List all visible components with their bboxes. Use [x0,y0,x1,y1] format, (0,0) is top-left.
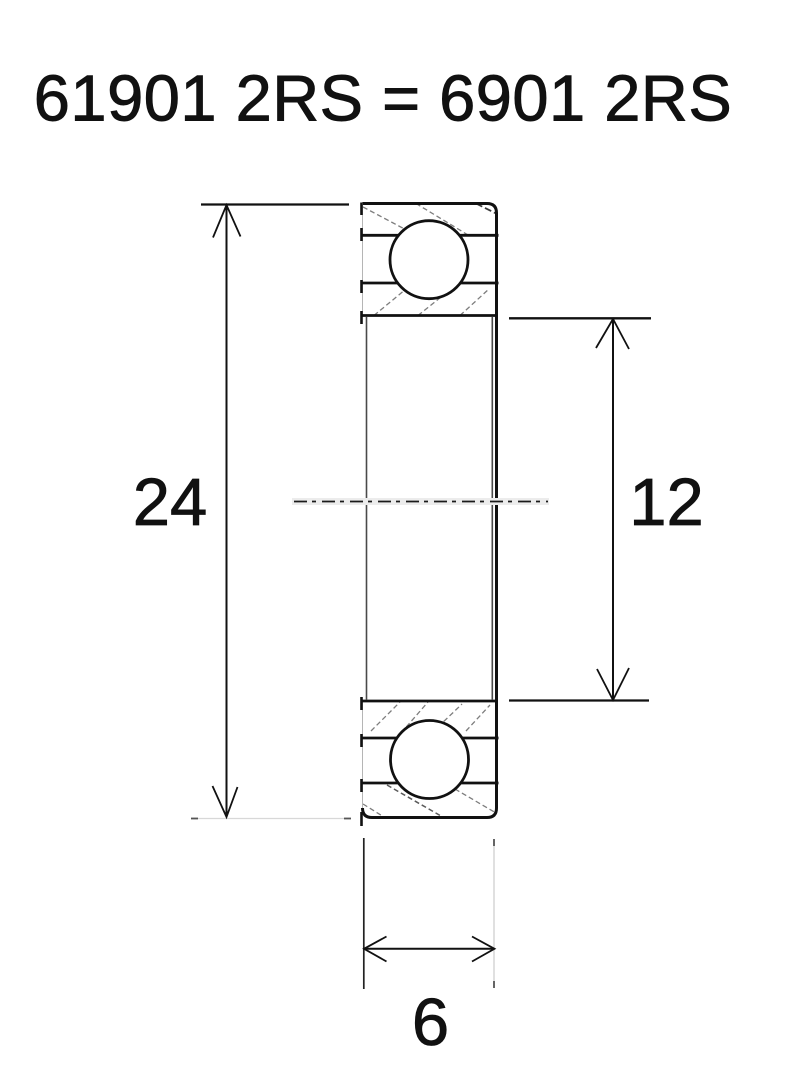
svg-text:24: 24 [133,465,208,540]
svg-text:6: 6 [412,985,449,1060]
svg-text:61901 2RS = 6901 2RS: 61901 2RS = 6901 2RS [34,62,732,135]
svg-text:12: 12 [629,465,704,540]
